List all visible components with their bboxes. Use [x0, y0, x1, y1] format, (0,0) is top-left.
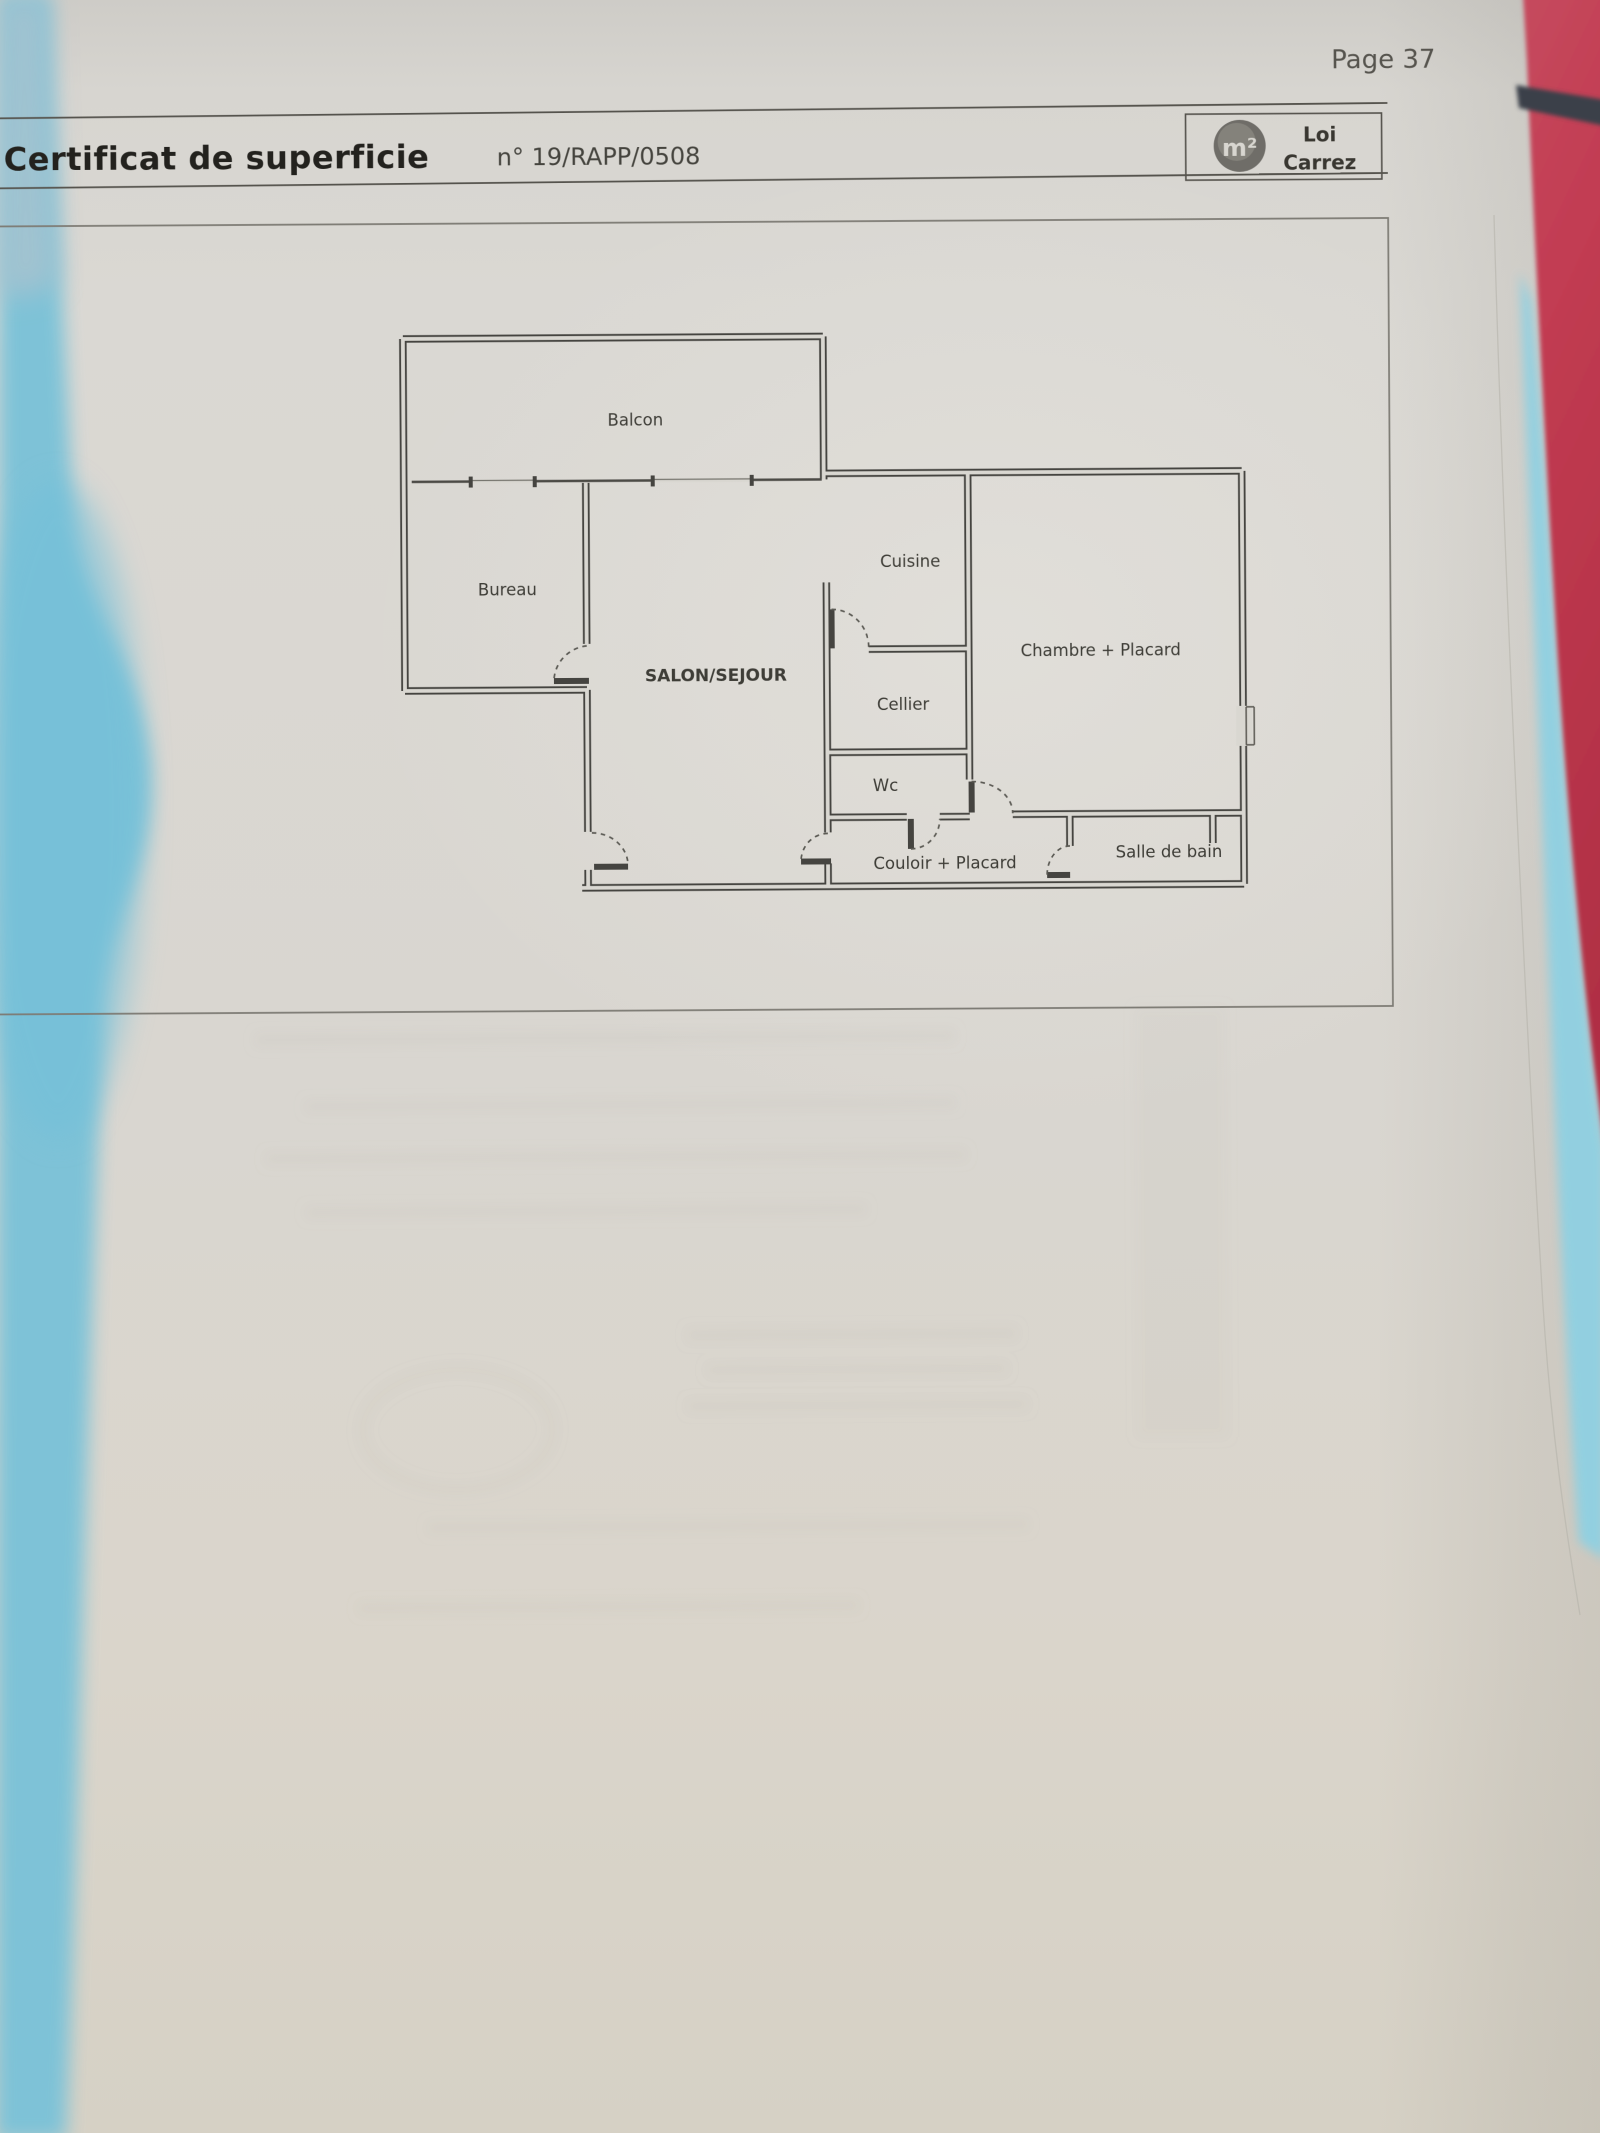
salle-de-bain-door-arc	[1047, 846, 1070, 875]
badge-line1: Loi	[1303, 122, 1336, 146]
room-label-bureau: Bureau	[478, 580, 537, 599]
desk-background	[0, 0, 1600, 2133]
room-label-salle-de-bain: Salle de bain	[1116, 842, 1223, 862]
room-label-couloir: Couloir + Placard	[873, 853, 1016, 873]
chambre-door-arc	[972, 781, 1013, 813]
reverse-bleed-through	[255, 1007, 1229, 1615]
door-leaves	[554, 608, 1071, 878]
room-label-cellier: Cellier	[877, 695, 930, 714]
right-wall-window-recess	[1236, 706, 1254, 746]
wc-door-arc	[911, 819, 940, 849]
header-top-rule	[0, 103, 1387, 119]
room-label-salon: SALON/SEJOUR	[645, 666, 787, 687]
room-label-balcon: Balcon	[607, 410, 663, 429]
salon-left-door-arc	[592, 833, 628, 865]
badge-line2: Carrez	[1283, 150, 1356, 174]
salon-couloir-door-arc	[801, 833, 828, 860]
bureau-door-arc	[554, 646, 587, 681]
loi-carrez-badge: m² Loi Carrez	[1185, 113, 1381, 180]
document-number: n° 19/RAPP/0508	[497, 142, 701, 171]
photographed-document: Page 37 Certificat de superficie n° 19/R…	[0, 0, 1600, 2133]
room-label-cuisine: Cuisine	[880, 552, 940, 571]
m2-logo-glyph: m²	[1222, 134, 1258, 162]
page-number: Page 37	[1331, 45, 1435, 76]
cuisine-door-arc	[832, 609, 869, 647]
printed-page: Page 37 Certificat de superficie n° 19/R…	[0, 45, 1445, 1617]
document-scene: Page 37 Certificat de superficie n° 19/R…	[0, 0, 1600, 2133]
room-label-chambre: Chambre + Placard	[1021, 640, 1181, 660]
room-label-wc: Wc	[873, 776, 899, 795]
header-band: Certificat de superficie n° 19/RAPP/0508…	[0, 103, 1388, 189]
balcony-window-wall	[412, 474, 822, 488]
floor-plan: Balcon Bureau SALON/SEJOUR Cuisine Celli…	[403, 334, 1255, 889]
cyan-core-glow	[0, 480, 143, 1140]
door-swing-arcs	[554, 608, 1071, 878]
document-title: Certificat de superficie	[4, 138, 430, 179]
